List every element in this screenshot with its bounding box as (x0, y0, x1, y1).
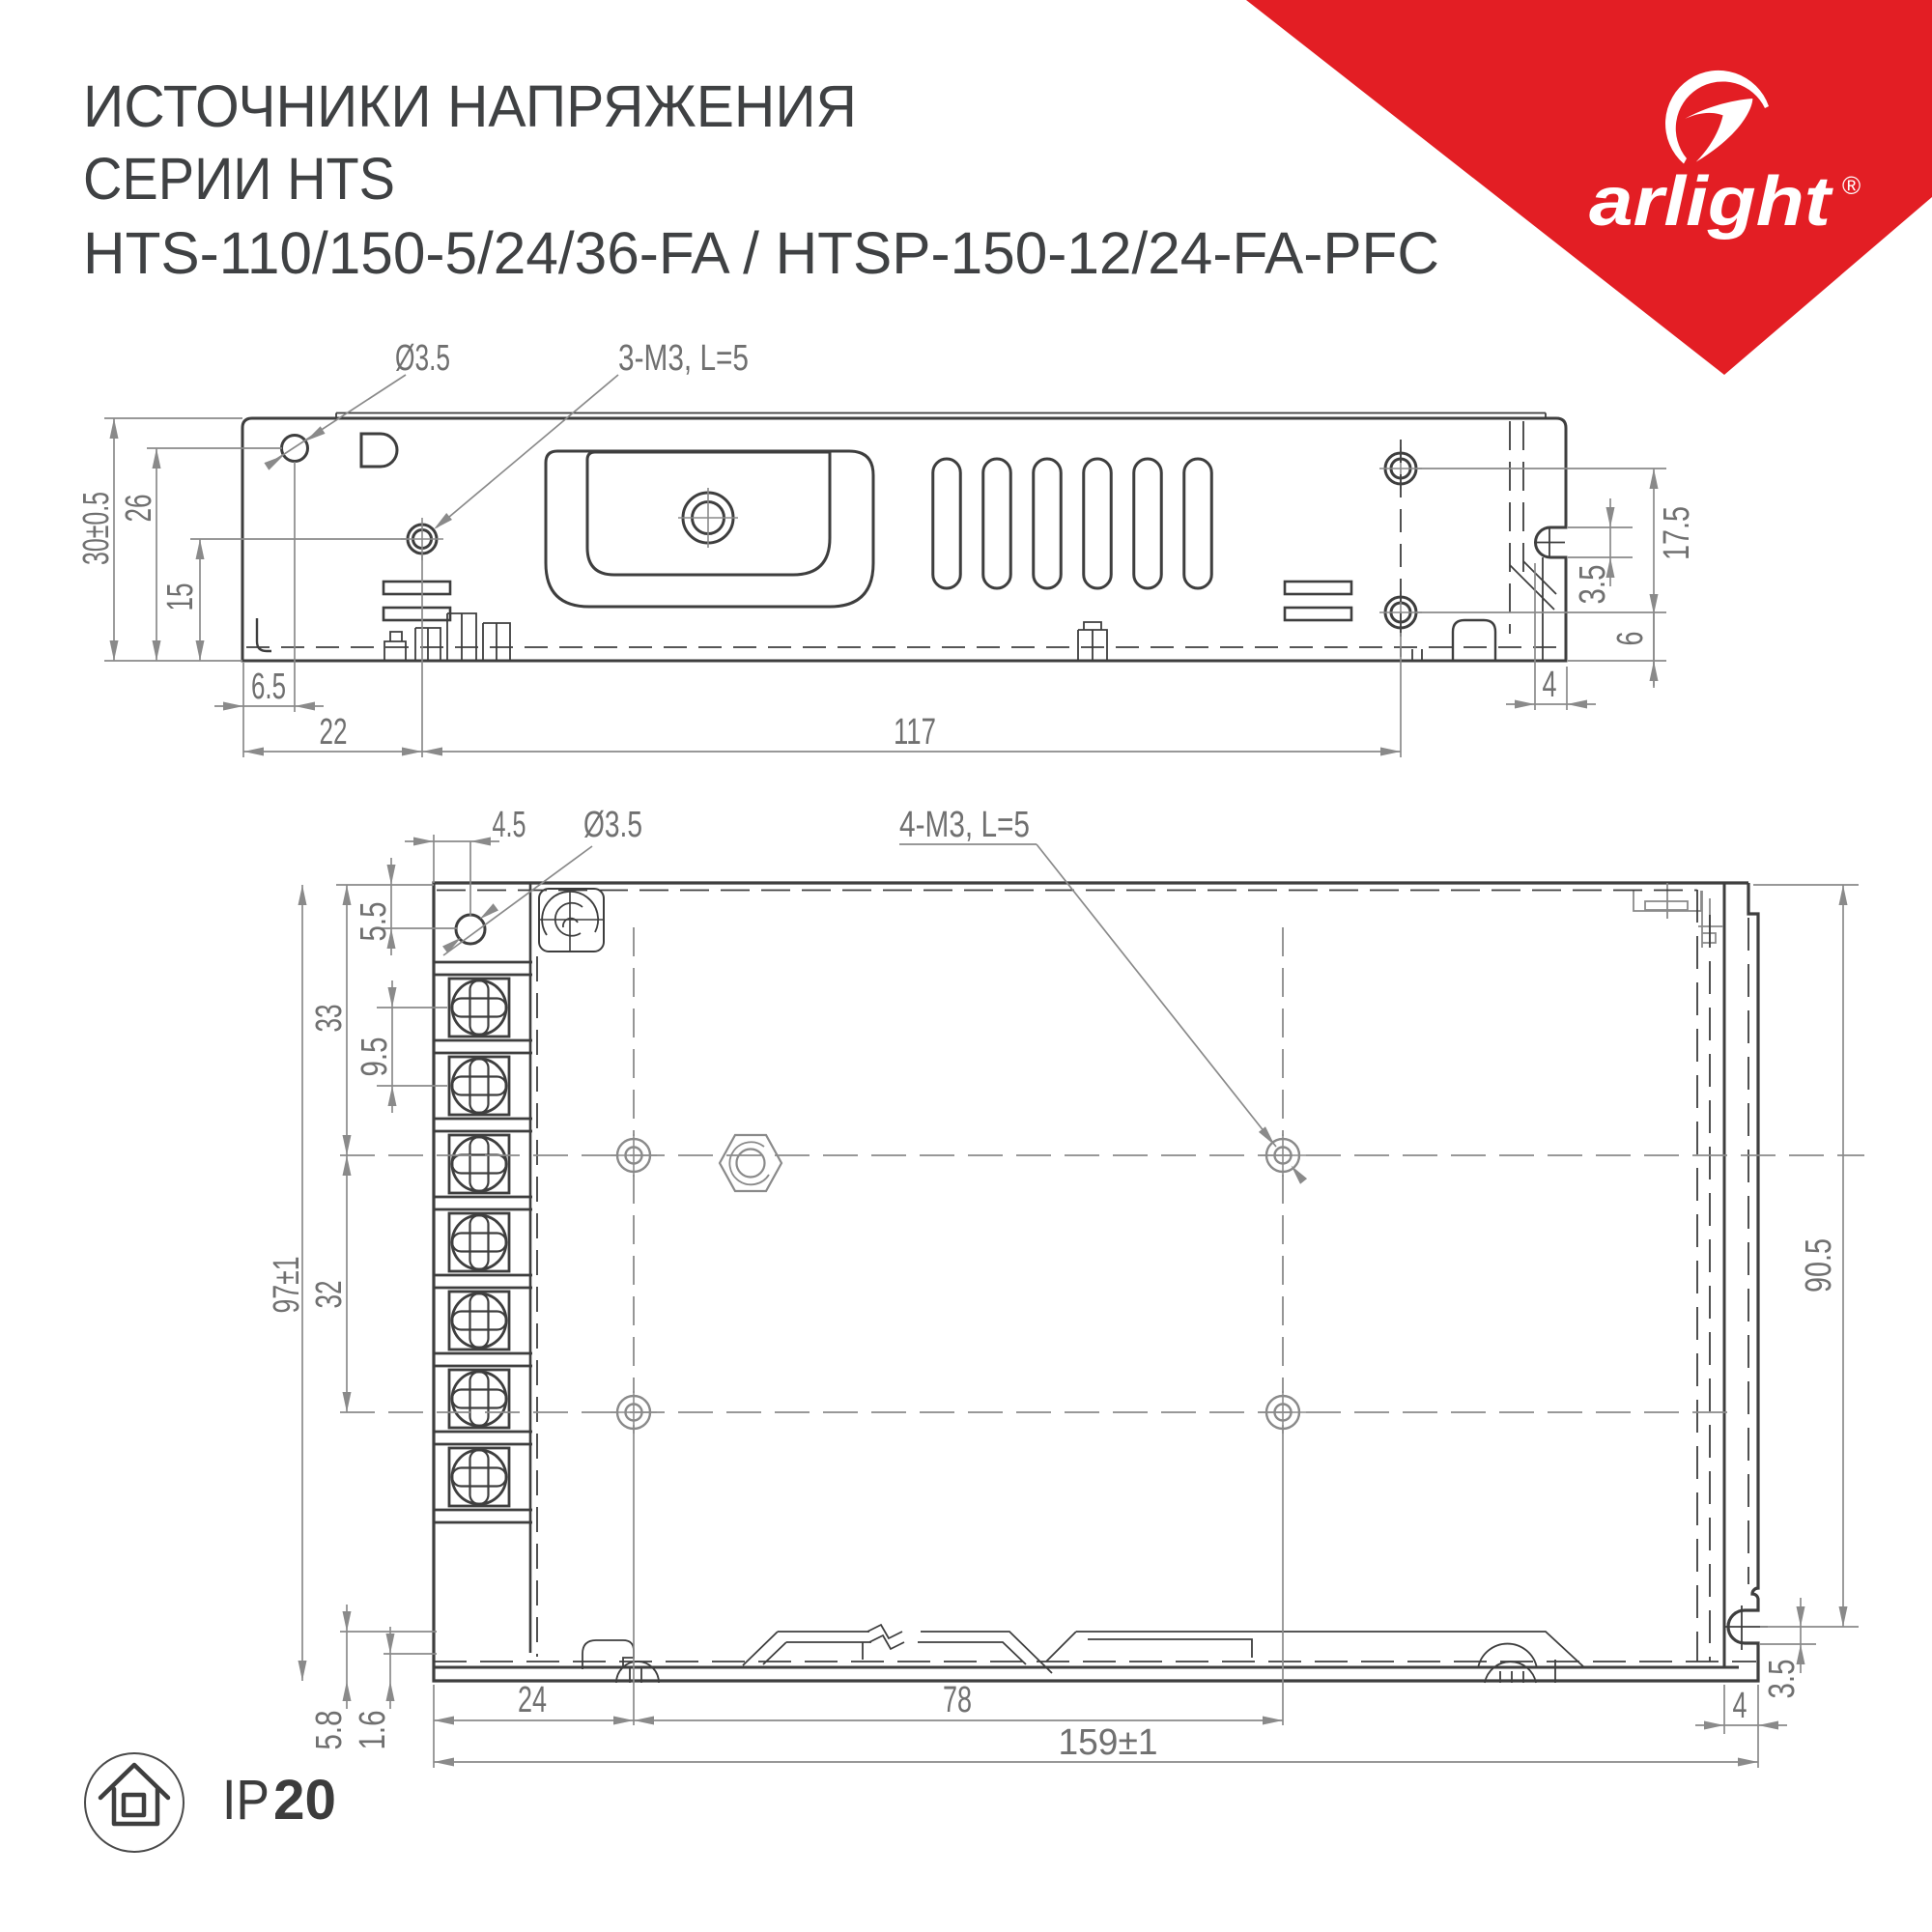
svg-text:СЕРИИ HTS: СЕРИИ HTS (83, 146, 395, 212)
svg-text:®: ® (1842, 171, 1861, 200)
svg-text:9.5: 9.5 (355, 1037, 395, 1077)
svg-text:4.5: 4.5 (493, 805, 526, 845)
svg-text:4-M3, L=5: 4-M3, L=5 (899, 805, 1030, 845)
svg-text:26: 26 (119, 495, 159, 523)
svg-text:4: 4 (1733, 1686, 1747, 1726)
svg-text:3-M3, L=5: 3-M3, L=5 (618, 338, 749, 379)
svg-text:1.6: 1.6 (353, 1711, 393, 1750)
svg-text:IP: IP (222, 1769, 270, 1832)
svg-text:6.5: 6.5 (251, 667, 286, 707)
svg-text:33: 33 (309, 1005, 350, 1033)
svg-text:Ø3.5: Ø3.5 (583, 805, 642, 845)
svg-text:32: 32 (309, 1281, 350, 1309)
svg-text:4: 4 (1543, 665, 1557, 705)
svg-text:HTS-110/150-5/24/36-FA / HTSP-: HTS-110/150-5/24/36-FA / HTSP-150-12/24-… (83, 220, 1439, 286)
svg-text:20: 20 (273, 1769, 336, 1832)
svg-text:24: 24 (518, 1680, 547, 1720)
svg-text:90.5: 90.5 (1799, 1238, 1839, 1293)
svg-text:5.8: 5.8 (309, 1711, 350, 1750)
svg-text:3.5: 3.5 (1762, 1660, 1803, 1699)
svg-text:17.5: 17.5 (1657, 506, 1697, 560)
svg-text:15: 15 (160, 583, 201, 611)
svg-text:97±1: 97±1 (267, 1257, 307, 1314)
svg-text:Ø3.5: Ø3.5 (395, 338, 450, 379)
svg-text:22: 22 (320, 712, 348, 753)
svg-text:30±0.5: 30±0.5 (76, 492, 117, 565)
svg-text:117: 117 (894, 712, 936, 753)
svg-text:5.5: 5.5 (354, 902, 394, 942)
svg-text:6: 6 (1610, 632, 1651, 646)
svg-text:arlight: arlight (1589, 163, 1833, 241)
svg-text:78: 78 (943, 1680, 972, 1720)
svg-text:3.5: 3.5 (1573, 565, 1613, 605)
svg-text:ИСТОЧНИКИ НАПРЯЖЕНИЯ: ИСТОЧНИКИ НАПРЯЖЕНИЯ (83, 73, 857, 139)
svg-text:159±1: 159±1 (1059, 1722, 1158, 1763)
